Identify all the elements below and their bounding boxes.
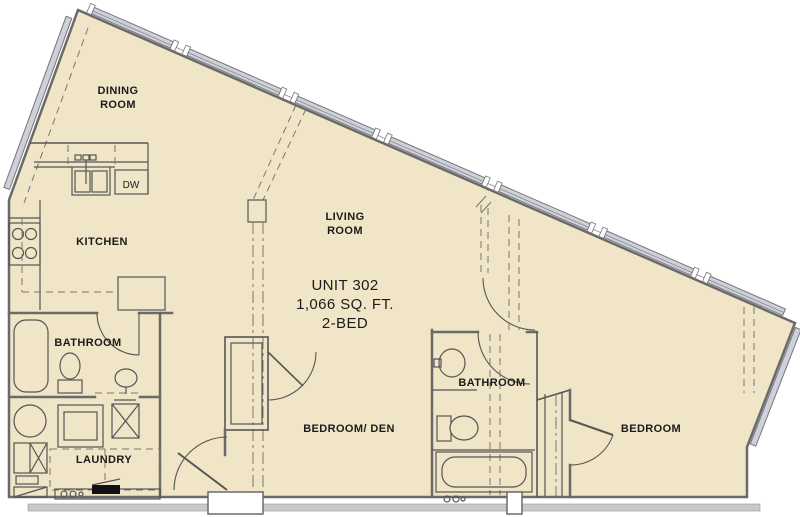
kitchen-label: KITCHEN bbox=[76, 236, 128, 248]
dining-room-label-1: DINING bbox=[98, 85, 139, 97]
unit-area: 1,066 SQ. FT. bbox=[296, 296, 394, 313]
dishwasher-label: DW bbox=[123, 180, 140, 191]
laundry-label: LAUNDRY bbox=[76, 454, 132, 466]
range-hood-block bbox=[92, 485, 120, 494]
entry-recess bbox=[208, 492, 263, 514]
toilet-1 bbox=[58, 353, 82, 393]
corridor-wall-band bbox=[28, 504, 760, 511]
floor-plan-page: DW bbox=[0, 0, 800, 517]
unit-bedrooms: 2-BED bbox=[322, 315, 368, 332]
bathroom2-label: BATHROOM bbox=[458, 377, 525, 389]
bathtub-1 bbox=[14, 320, 48, 392]
bathroom1-label: BATHROOM bbox=[54, 337, 121, 349]
dining-room-label-2: ROOM bbox=[100, 99, 136, 111]
unit-title: UNIT 302 bbox=[311, 277, 378, 294]
service-recess bbox=[507, 492, 522, 514]
floor-plan-canvas: DW bbox=[0, 0, 800, 517]
living-room-label-1: LIVING bbox=[325, 211, 364, 223]
living-room-label-2: ROOM bbox=[327, 225, 363, 237]
toilet-2 bbox=[437, 416, 478, 441]
bedroom-den-label: BEDROOM/ DEN bbox=[303, 423, 395, 435]
bedroom2-label: BEDROOM bbox=[621, 423, 681, 435]
